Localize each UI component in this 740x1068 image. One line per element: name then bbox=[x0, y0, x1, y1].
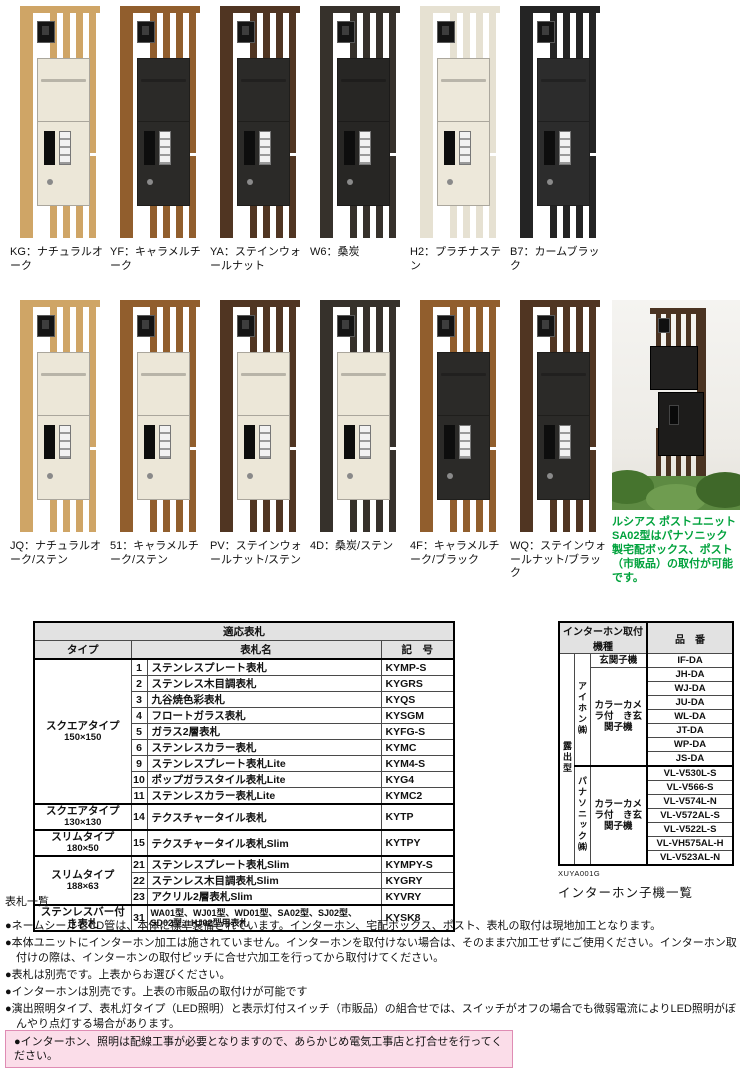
intercom-screen-icon bbox=[42, 320, 49, 329]
keypad-icon bbox=[59, 131, 71, 165]
type-name: スクエアタイプ bbox=[39, 720, 127, 732]
mail-slot bbox=[141, 373, 186, 376]
model-number-cell: JS-DA bbox=[647, 752, 733, 767]
nameplate-code-cell: KYGRS bbox=[381, 676, 454, 692]
product-variant-card: JQ：ナチュラルオーク/ステン bbox=[8, 300, 108, 585]
nameplate-code-cell: KYTP bbox=[381, 804, 454, 830]
photo-frame-topbar bbox=[650, 308, 706, 314]
nameplate-number-cell: 5 bbox=[131, 724, 147, 740]
nameplate-code-cell: KYFG-S bbox=[381, 724, 454, 740]
model-number-cell: VL-V523AL-N bbox=[647, 851, 733, 866]
lock-icon bbox=[347, 473, 353, 479]
mail-slot bbox=[541, 79, 586, 82]
unit-body bbox=[137, 352, 190, 500]
table-row: スリムタイプ188×6321ステンレスプレート表札SlimKYMPY-S bbox=[34, 856, 454, 873]
intercom-screen-icon bbox=[242, 26, 249, 35]
product-variant-label: PV：ステインウォールナット/ステン bbox=[208, 540, 307, 567]
nameplate-name-cell: ステンレスカラー表札 bbox=[147, 740, 381, 756]
keypad-icon bbox=[359, 425, 371, 459]
intercom-icon bbox=[237, 315, 255, 337]
note-item: ●表札は別売です。上表からお選びください。 bbox=[5, 968, 738, 983]
nameplate-number-cell: 1 bbox=[131, 659, 147, 676]
unit-frame-post bbox=[320, 300, 333, 532]
product-variant-card: 51：キャラメルチーク/ステン bbox=[108, 300, 208, 585]
intercom-screen-icon bbox=[542, 26, 549, 35]
note-item: ●インターホンは別売です。上表の市販品の取付けが可能です bbox=[5, 985, 738, 1000]
product-variant-card: B7：カームブラック bbox=[508, 6, 608, 273]
intercom-icon bbox=[137, 21, 155, 43]
nameplate-type-cell: スクエアタイプ150×150 bbox=[34, 659, 131, 804]
model-number-cell: VL-VH575AL-H bbox=[647, 837, 733, 851]
col-header-code: 記 号 bbox=[381, 641, 454, 660]
lock-icon bbox=[147, 473, 153, 479]
type-name: スリムタイプ bbox=[39, 869, 127, 881]
unit-frame-topbar bbox=[220, 6, 300, 13]
unit-frame-post bbox=[520, 6, 533, 238]
intercom-screen-icon bbox=[142, 320, 149, 329]
door-divider bbox=[238, 415, 289, 416]
intercom-screen-icon bbox=[242, 320, 249, 329]
unit-body bbox=[537, 352, 590, 500]
unit-frame-post bbox=[220, 6, 233, 238]
nameplate-code-cell: KYGRY bbox=[381, 873, 454, 889]
intercom-screen-icon bbox=[442, 320, 449, 329]
mail-slot bbox=[141, 79, 186, 82]
unit-frame-post bbox=[420, 6, 433, 238]
intercom-icon bbox=[237, 21, 255, 43]
nameplate-number-cell: 15 bbox=[131, 830, 147, 856]
unit-frame-topbar bbox=[420, 6, 500, 13]
product-variant-label: YF：キャラメルチーク bbox=[108, 246, 207, 273]
nameplate-number-cell: 22 bbox=[131, 873, 147, 889]
note-item: ●演出照明タイプ、表札灯タイプ（LED照明）と表示灯付スイッチ（市販品）の組合せ… bbox=[5, 1002, 738, 1032]
control-panel-icon bbox=[44, 425, 55, 459]
note-item: ●本体ユニットにインターホン加工は施されていません。インターホンを取付けない場合… bbox=[5, 936, 738, 966]
unit-frame-topbar bbox=[220, 300, 300, 307]
table-code: XUYA001G bbox=[558, 869, 732, 878]
nameplate-code-cell: KYQS bbox=[381, 692, 454, 708]
post-unit-image bbox=[520, 300, 600, 532]
unit-body bbox=[337, 352, 390, 500]
intercom-icon bbox=[137, 315, 155, 337]
nameplate-code-cell: KYMPY-S bbox=[381, 856, 454, 873]
nameplate-number-cell: 10 bbox=[131, 772, 147, 788]
control-panel-icon bbox=[144, 131, 155, 165]
mail-slot bbox=[441, 373, 486, 376]
table-header-row: タイプ 表札名 記 号 bbox=[34, 641, 454, 660]
control-panel-icon bbox=[344, 131, 355, 165]
nameplate-number-cell: 2 bbox=[131, 676, 147, 692]
nameplate-name-cell: フロートガラス表札 bbox=[147, 708, 381, 724]
model-number-cell: JU-DA bbox=[647, 696, 733, 710]
intercom-icon bbox=[537, 21, 555, 43]
nameplate-code-cell: KYTPY bbox=[381, 830, 454, 856]
nameplate-name-cell: 九谷焼色彩表札 bbox=[147, 692, 381, 708]
mail-slot bbox=[441, 79, 486, 82]
unit-frame-topbar bbox=[320, 6, 400, 13]
model-number-cell: WJ-DA bbox=[647, 682, 733, 696]
unit-body bbox=[337, 58, 390, 206]
nameplate-number-cell: 6 bbox=[131, 740, 147, 756]
intercom-screen-icon bbox=[442, 26, 449, 35]
product-color-row-2: JQ：ナチュラルオーク/ステン51：キャラメルチーク/ステンPV：ステインウォー… bbox=[8, 300, 738, 585]
intercom-icon bbox=[37, 21, 55, 43]
table-row: スクエアタイプ130×13014テクスチャータイル表札KYTP bbox=[34, 804, 454, 830]
product-variant-label: B7：カームブラック bbox=[508, 246, 607, 273]
product-variant-card: 4F：キャラメルチーク/ブラック bbox=[408, 300, 508, 585]
photo-keypad-icon bbox=[669, 405, 679, 425]
control-panel-icon bbox=[244, 131, 255, 165]
door-divider bbox=[138, 121, 189, 122]
control-panel-icon bbox=[144, 425, 155, 459]
mail-slot bbox=[241, 79, 286, 82]
model-number-cell: JT-DA bbox=[647, 724, 733, 738]
type-size: 180×50 bbox=[39, 843, 127, 855]
col-header-type: タイプ bbox=[34, 641, 131, 660]
product-variant-label: YA：ステインウォールナット bbox=[208, 246, 307, 273]
photo-intercom-icon bbox=[658, 318, 670, 333]
product-variant-card: YF：キャラメルチーク bbox=[108, 6, 208, 273]
product-variant-card: W6：桑炭 bbox=[308, 6, 408, 273]
unit-frame-post bbox=[420, 300, 433, 532]
product-variant-label: JQ：ナチュラルオーク/ステン bbox=[8, 540, 107, 567]
model-number-cell: VL-V522L-S bbox=[647, 823, 733, 837]
post-unit-image bbox=[320, 6, 400, 238]
photo-mailbox bbox=[650, 346, 698, 390]
keypad-icon bbox=[459, 131, 471, 165]
table-row: スリムタイプ180×5015テクスチャータイル表札SlimKYTPY bbox=[34, 830, 454, 856]
intercom-table: インターホン取付機種 品 番 露出型アイホン㈱玄関子機IF-DAカラーカメラ付 … bbox=[558, 621, 734, 866]
nameplate-code-cell: KYSGM bbox=[381, 708, 454, 724]
model-number-cell: VL-V530L-S bbox=[647, 766, 733, 781]
nameplate-number-cell: 3 bbox=[131, 692, 147, 708]
lock-icon bbox=[47, 179, 53, 185]
control-panel-icon bbox=[344, 425, 355, 459]
unit-frame-topbar bbox=[20, 6, 100, 13]
intercom-header-row: インターホン取付機種 品 番 bbox=[559, 622, 733, 654]
unit-body bbox=[37, 58, 90, 206]
keypad-icon bbox=[359, 131, 371, 165]
post-unit-image bbox=[220, 300, 300, 532]
unit-frame-post bbox=[20, 6, 33, 238]
maker-label: アイホン㈱ bbox=[576, 681, 588, 736]
nameplate-number-cell: 11 bbox=[131, 788, 147, 805]
product-variant-card: KG：ナチュラルオーク bbox=[8, 6, 108, 273]
product-variant-card: PV：ステインウォールナット/ステン bbox=[208, 300, 308, 585]
control-panel-icon bbox=[444, 131, 455, 165]
nameplate-type-cell: スリムタイプ180×50 bbox=[34, 830, 131, 856]
lock-icon bbox=[547, 473, 553, 479]
type-size: 130×130 bbox=[39, 817, 127, 829]
nameplate-table-title: 適応表札 bbox=[34, 622, 454, 641]
product-variant-label: 4F：キャラメルチーク/ブラック bbox=[408, 540, 507, 567]
door-divider bbox=[438, 121, 489, 122]
post-unit-image bbox=[20, 300, 100, 532]
door-divider bbox=[38, 121, 89, 122]
notes-section: 表札一覧 ●ネームシールとCD管は、本体に標準装備されています。インターホン、宅… bbox=[5, 893, 738, 1051]
col-header-name: 表札名 bbox=[131, 641, 381, 660]
unit-frame-topbar bbox=[520, 300, 600, 307]
type-size: 150×150 bbox=[39, 732, 127, 744]
intercom-screen-icon bbox=[142, 26, 149, 35]
type-size: 188×63 bbox=[39, 881, 127, 893]
product-variant-card: H2：プラチナステン bbox=[408, 6, 508, 273]
door-divider bbox=[338, 415, 389, 416]
control-panel-icon bbox=[544, 131, 555, 165]
keypad-icon bbox=[459, 425, 471, 459]
lifestyle-photo-block: ルシアス ポストユニットSA02型はパナソニック製宅配ボックス、ポスト（市販品）… bbox=[608, 300, 738, 585]
maker-cell: パナソニック㈱ bbox=[574, 766, 590, 865]
mail-slot bbox=[541, 373, 586, 376]
unit-body bbox=[437, 58, 490, 206]
mail-slot bbox=[41, 79, 86, 82]
control-panel-icon bbox=[244, 425, 255, 459]
door-divider bbox=[238, 121, 289, 122]
type-name: スクエアタイプ bbox=[39, 805, 127, 817]
nameplate-name-cell: ステンレスプレート表札 bbox=[147, 659, 381, 676]
unit-kind-cell: カラーカメラ付 き玄関子機 bbox=[590, 766, 647, 865]
intercom-screen-icon bbox=[542, 320, 549, 329]
lock-icon bbox=[447, 473, 453, 479]
control-panel-icon bbox=[444, 425, 455, 459]
unit-body bbox=[237, 352, 290, 500]
lock-icon bbox=[547, 179, 553, 185]
control-panel-icon bbox=[44, 131, 55, 165]
nameplate-table: 適応表札 タイプ 表札名 記 号 スクエアタイプ150×1501ステンレスプレー… bbox=[33, 621, 455, 932]
keypad-icon bbox=[159, 425, 171, 459]
unit-frame-topbar bbox=[120, 6, 200, 13]
model-number-cell: WP-DA bbox=[647, 738, 733, 752]
nameplate-code-cell: KYG4 bbox=[381, 772, 454, 788]
mail-slot bbox=[341, 373, 386, 376]
type-name: スリムタイプ bbox=[39, 831, 127, 843]
table-row: 露出型アイホン㈱玄関子機IF-DA bbox=[559, 654, 733, 668]
unit-frame-topbar bbox=[120, 300, 200, 307]
lock-icon bbox=[147, 179, 153, 185]
intercom-icon bbox=[337, 315, 355, 337]
intercom-screen-icon bbox=[42, 26, 49, 35]
lock-icon bbox=[347, 179, 353, 185]
intercom-icon bbox=[37, 315, 55, 337]
nameplate-type-cell: スクエアタイプ130×130 bbox=[34, 804, 131, 830]
photo-post-unit bbox=[650, 308, 706, 486]
unit-frame-post bbox=[220, 300, 233, 532]
unit-kind-cell: 玄関子機 bbox=[590, 654, 647, 668]
intercom-icon bbox=[337, 21, 355, 43]
mount-type-cell: 露出型 bbox=[559, 654, 574, 866]
model-number-cell: VL-V572AL-S bbox=[647, 809, 733, 823]
post-unit-image bbox=[420, 6, 500, 238]
keypad-icon bbox=[559, 131, 571, 165]
maker-label: パナソニック㈱ bbox=[576, 776, 588, 853]
intercom-section: インターホン取付機種 品 番 露出型アイホン㈱玄関子機IF-DAカラーカメラ付 … bbox=[558, 621, 732, 901]
nameplate-name-cell: テクスチャータイル表札Slim bbox=[147, 830, 381, 856]
nameplate-name-cell: ステンレス木目調表札Slim bbox=[147, 873, 381, 889]
nameplate-number-cell: 21 bbox=[131, 856, 147, 873]
nameplate-name-cell: ステンレス木目調表札 bbox=[147, 676, 381, 692]
intercom-icon bbox=[437, 315, 455, 337]
lock-icon bbox=[247, 473, 253, 479]
nameplate-code-cell: KYM4-S bbox=[381, 756, 454, 772]
product-variant-card: 4D：桑炭/ステン bbox=[308, 300, 408, 585]
product-variant-label: 51：キャラメルチーク/ステン bbox=[108, 540, 207, 567]
mount-type-label: 露出型 bbox=[561, 741, 573, 774]
table-row: スクエアタイプ150×1501ステンレスプレート表札KYMP-S bbox=[34, 659, 454, 676]
model-number-cell: VL-V574L-N bbox=[647, 795, 733, 809]
nameplate-number-cell: 9 bbox=[131, 756, 147, 772]
model-number-cell: VL-V566-S bbox=[647, 781, 733, 795]
lock-icon bbox=[47, 473, 53, 479]
mail-slot bbox=[41, 373, 86, 376]
door-divider bbox=[538, 121, 589, 122]
nameplate-name-cell: ステンレスプレート表札Slim bbox=[147, 856, 381, 873]
table-row: パナソニック㈱カラーカメラ付 き玄関子機VL-V530L-S bbox=[559, 766, 733, 781]
unit-frame-topbar bbox=[420, 300, 500, 307]
door-divider bbox=[38, 415, 89, 416]
nameplate-code-cell: KYMP-S bbox=[381, 659, 454, 676]
unit-body bbox=[37, 352, 90, 500]
nameplate-name-cell: テクスチャータイル表札 bbox=[147, 804, 381, 830]
intercom-screen-icon bbox=[342, 26, 349, 35]
keypad-icon bbox=[259, 425, 271, 459]
nameplate-number-cell: 4 bbox=[131, 708, 147, 724]
unit-frame-topbar bbox=[20, 300, 100, 307]
product-variant-card: WQ：ステインウォールナット/ブラック bbox=[508, 300, 608, 585]
keypad-icon bbox=[59, 425, 71, 459]
unit-frame-topbar bbox=[520, 6, 600, 13]
model-number-cell: IF-DA bbox=[647, 654, 733, 668]
keypad-icon bbox=[159, 131, 171, 165]
door-divider bbox=[438, 415, 489, 416]
intercom-screen-icon bbox=[342, 320, 349, 329]
photo-caption: ルシアス ポストユニットSA02型はパナソニック製宅配ボックス、ポスト（市販品）… bbox=[612, 515, 738, 585]
product-color-row-1: KG：ナチュラルオークYF：キャラメルチークYA：ステインウォールナットW6：桑… bbox=[8, 6, 608, 273]
unit-body bbox=[137, 58, 190, 206]
unit-frame-post bbox=[120, 300, 133, 532]
keypad-icon bbox=[559, 425, 571, 459]
nameplate-number-cell: 14 bbox=[131, 804, 147, 830]
unit-frame-topbar bbox=[320, 300, 400, 307]
unit-body bbox=[437, 352, 490, 500]
nameplate-name-cell: ステンレスカラー表札Lite bbox=[147, 788, 381, 805]
mail-slot bbox=[241, 373, 286, 376]
keypad-icon bbox=[259, 131, 271, 165]
intercom-icon bbox=[537, 315, 555, 337]
unit-frame-post bbox=[20, 300, 33, 532]
post-unit-image bbox=[320, 300, 400, 532]
maker-cell: アイホン㈱ bbox=[574, 654, 590, 767]
lifestyle-photo bbox=[612, 300, 740, 510]
intercom-header-right: 品 番 bbox=[647, 622, 733, 654]
post-unit-image bbox=[420, 300, 500, 532]
post-unit-image bbox=[20, 6, 100, 238]
post-unit-image bbox=[120, 300, 200, 532]
mail-slot bbox=[341, 79, 386, 82]
lock-icon bbox=[447, 179, 453, 185]
post-unit-image bbox=[220, 6, 300, 238]
unit-body bbox=[237, 58, 290, 206]
door-divider bbox=[338, 121, 389, 122]
model-number-cell: WL-DA bbox=[647, 710, 733, 724]
product-variant-label: W6：桑炭 bbox=[308, 246, 407, 260]
nameplate-name-cell: ガラス2層表札 bbox=[147, 724, 381, 740]
post-unit-image bbox=[120, 6, 200, 238]
nameplate-code-cell: KYMC bbox=[381, 740, 454, 756]
post-unit-image bbox=[520, 6, 600, 238]
unit-kind-cell: カラーカメラ付 き玄関子機 bbox=[590, 668, 647, 767]
unit-frame-post bbox=[320, 6, 333, 238]
product-variant-label: 4D：桑炭/ステン bbox=[308, 540, 407, 554]
nameplate-code-cell: KYMC2 bbox=[381, 788, 454, 805]
intercom-icon bbox=[437, 21, 455, 43]
unit-frame-post bbox=[120, 6, 133, 238]
product-variant-card: YA：ステインウォールナット bbox=[208, 6, 308, 273]
door-divider bbox=[138, 415, 189, 416]
door-divider bbox=[538, 415, 589, 416]
intercom-header-left: インターホン取付機種 bbox=[559, 622, 647, 654]
unit-body bbox=[537, 58, 590, 206]
model-number-cell: JH-DA bbox=[647, 668, 733, 682]
nameplate-name-cell: ステンレスプレート表札Lite bbox=[147, 756, 381, 772]
note-item: ●ネームシールとCD管は、本体に標準装備されています。インターホン、宅配ボックス… bbox=[5, 919, 738, 934]
product-variant-label: KG：ナチュラルオーク bbox=[8, 246, 107, 273]
product-variant-label: WQ：ステインウォールナット/ブラック bbox=[508, 540, 607, 581]
table-title-row: 適応表札 bbox=[34, 622, 454, 641]
notes-title: 表札一覧 bbox=[5, 893, 738, 909]
nameplate-name-cell: ポップガラスタイル表札Lite bbox=[147, 772, 381, 788]
photo-delivery-box bbox=[658, 392, 704, 456]
warning-note: ●インターホン、照明は配線工事が必要となりますので、あらかじめ電気工事店と打合せ… bbox=[5, 1030, 513, 1068]
unit-frame-post bbox=[520, 300, 533, 532]
product-variant-label: H2：プラチナステン bbox=[408, 246, 507, 273]
lock-icon bbox=[247, 179, 253, 185]
control-panel-icon bbox=[544, 425, 555, 459]
